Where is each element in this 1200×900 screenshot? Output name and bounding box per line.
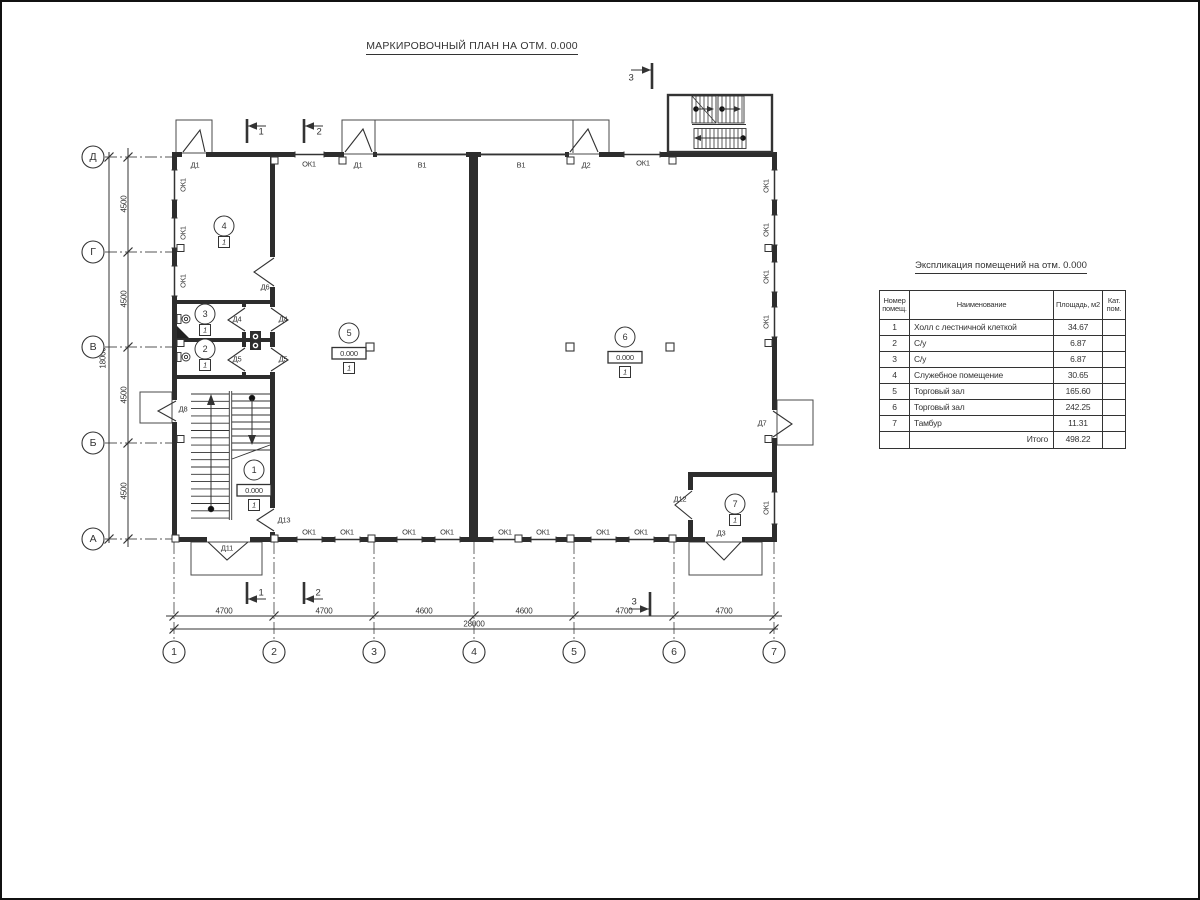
opening-label: Д4 [279,315,288,324]
row-name: Холл с лестничной клеткой [910,320,1054,336]
wall [599,152,624,157]
toilet-bowl [184,317,187,320]
row-area: 165.60 [1054,384,1103,400]
opening-label: ОК1 [536,528,550,537]
floor-type: 1 [252,501,256,510]
wall [654,537,705,542]
axis-label: Б [90,437,97,449]
opening-label: Д11 [221,544,233,553]
row-category [1103,400,1125,416]
row-category [1103,336,1125,352]
floor-type: 1 [222,238,226,247]
toilet-tank [177,315,181,324]
row-area: 6.87 [1054,352,1103,368]
axis-label: А [90,533,97,545]
elevation-value: 0.000 [616,353,634,362]
door-leaf [257,509,274,531]
room-number: 5 [347,328,352,338]
axis-label: 2 [271,646,277,658]
vent-stack [254,335,256,337]
section-mark-arrow [248,595,257,603]
row-category [1103,416,1125,432]
opening-label: Д1 [191,161,200,170]
total-row-number [880,432,910,448]
room-number: 1 [252,465,257,475]
opening-label: Д4 [233,315,242,324]
wall [772,152,777,170]
axis-label: Д [90,151,97,163]
wall-pilaster [669,535,676,542]
porch-outline [176,120,212,153]
wall-pilaster [567,157,574,164]
row-name: Торговый зал [910,384,1054,400]
column [366,343,374,351]
wall [460,537,493,542]
total-label: Итого [910,432,1054,448]
row-number: 3 [880,352,910,368]
section-number: 2 [316,127,321,138]
dimension-label: 28000 [463,620,485,629]
door-leaf [570,129,598,152]
dimension-label: 4600 [416,607,434,616]
wall-pilaster [368,535,375,542]
row-category [1103,320,1125,336]
porch-outline [140,392,172,423]
opening-label: ОК1 [762,223,771,237]
row-area: 34.67 [1054,320,1103,336]
wall [172,296,177,400]
opening-label: Д7 [758,419,767,428]
wall [322,537,335,542]
wall [772,438,777,492]
stair-arrowhead [248,435,256,445]
door-leaf [706,542,741,560]
door-leaf [183,130,205,152]
opening-label: Д13 [278,516,291,525]
wall [772,337,777,410]
section-mark-arrow [305,595,314,603]
axis-label: 5 [571,646,577,658]
floor-type: 1 [203,326,207,335]
room-schedule-table: Номер помещ. Наименование Площадь, м2 Ка… [879,290,1126,449]
axis-label: 6 [671,646,677,658]
section-number: 1 [258,127,263,138]
wall [688,520,693,542]
stair-break-line [232,445,270,459]
duct-shaft [177,326,189,338]
dimension-label: 4700 [216,607,234,616]
wall [174,375,270,379]
row-number: 6 [880,400,910,416]
row-area: 6.87 [1054,336,1103,352]
section-number: 1 [258,588,263,599]
porch-outline [777,400,813,445]
elevation-value: 0.000 [245,486,263,495]
opening-label: ОК1 [179,274,188,288]
wall [174,300,270,304]
porch-outline [342,120,609,154]
opening-label: ОК1 [440,528,454,537]
opening-label: В1 [418,161,427,170]
wall [688,472,693,490]
floor-type: 1 [733,516,737,525]
row-category [1103,368,1125,384]
wall [772,245,777,262]
section-number: 2 [315,588,320,599]
row-name: С/у [910,352,1054,368]
wall-pilaster [177,245,184,252]
opening-label: ОК1 [302,160,316,169]
elevation-value: 0.000 [340,349,358,358]
wall [324,152,344,157]
wall [172,200,177,218]
vent-stack [254,344,256,346]
wall [360,537,397,542]
opening-label: Д8 [179,405,188,414]
row-area: 242.25 [1054,400,1103,416]
room-number: 2 [203,344,208,354]
wall-pilaster [765,340,772,347]
row-category [1103,352,1125,368]
opening-label: Д3 [717,529,726,538]
opening-label: ОК1 [596,528,610,537]
room-number: 3 [203,309,208,319]
wall [772,524,777,542]
wall [206,152,295,157]
section-mark-arrow [248,122,257,130]
row-number: 1 [880,320,910,336]
col-header-number: Номер помещ. [880,291,910,320]
row-area: 30.65 [1054,368,1103,384]
dimension-label: 4600 [516,607,534,616]
wall [172,422,177,542]
opening-label: ОК1 [762,179,771,193]
row-number: 2 [880,336,910,352]
col-header-name: Наименование [910,291,1054,320]
row-name: Тамбур [910,416,1054,432]
opening-label: Д12 [674,495,687,504]
opening-label: Д5 [279,355,288,364]
row-number: 5 [880,384,910,400]
opening-label: ОК1 [179,226,188,240]
opening-label: ОК1 [498,528,512,537]
wall-pilaster [669,157,676,164]
wall [270,157,275,257]
toilet-tank [177,353,181,362]
wall [688,472,772,477]
door-leaf [158,401,176,421]
opening-label: ОК1 [340,528,354,537]
wall-pilaster [177,436,184,443]
column [666,343,674,351]
floor-type: 1 [347,364,351,373]
opening-label: ОК1 [636,159,650,168]
dimension-label: 4700 [616,607,634,616]
row-number: 7 [880,416,910,432]
wall-pilaster [271,535,278,542]
wall-pilaster [177,340,184,347]
row-area: 11.31 [1054,416,1103,432]
wall [469,157,478,537]
door-leaf [345,129,372,152]
row-name: Торговый зал [910,400,1054,416]
opening-label: ОК1 [179,178,188,192]
external-stair-outline [668,95,772,152]
drawing-sheet: МАРКИРОВОЧНЫЙ ПЛАН НА ОТМ. 0.000 123123Д… [0,0,1200,900]
dimension-label: 4700 [716,607,734,616]
section-mark-arrow [642,66,651,74]
axis-label: Г [90,246,96,258]
stair-arrowhead [207,394,215,405]
opening-label: ОК1 [302,528,316,537]
opening-label: ОК1 [762,501,771,515]
opening-label: Д1 [354,161,363,170]
opening-label: Д6 [261,283,270,292]
wall-pilaster [765,245,772,252]
wall-pilaster [515,535,522,542]
opening-label: ОК1 [634,528,648,537]
col-header-area: Площадь, м2 [1054,291,1103,320]
wall [616,537,629,542]
wall [422,537,435,542]
room-schedule-title: Экспликация помещений на отм. 0.000 [876,260,1126,271]
dimension-label: 4700 [316,607,334,616]
wall [270,332,275,347]
axis-label: 1 [171,646,177,658]
wall [742,537,777,542]
toilet-bowl [184,355,187,358]
wall-pilaster [765,436,772,443]
wall-pilaster [567,535,574,542]
section-number: 3 [628,73,633,84]
dimension-label: 4500 [120,386,129,404]
col-header-category: Кат. пом. [1103,291,1125,320]
column [566,343,574,351]
row-number: 4 [880,368,910,384]
wall-pilaster [339,157,346,164]
stair-arrowhead [734,106,741,112]
room-number: 4 [222,221,227,231]
row-name: Служебное помещение [910,368,1054,384]
wall-pilaster [172,535,179,542]
wall-pilaster [271,157,278,164]
floor-plan: 123123Д1ОК1Д1В1В1Д2ОК1ОК1ОК1ОК1ОК1ОК1ОК1… [2,2,1198,898]
dimension-label: 4500 [120,195,129,213]
row-name: С/у [910,336,1054,352]
room-number: 6 [623,332,628,342]
opening-label: Д2 [582,161,591,170]
opening-label: ОК1 [762,270,771,284]
section-mark-arrow [640,605,649,613]
axis-label: 4 [471,646,477,658]
wall [772,200,777,215]
opening-label: ОК1 [402,528,416,537]
door-leaf [773,411,792,437]
opening-label: В1 [517,161,526,170]
axis-label: В [90,341,97,353]
opening-label: Д5 [233,355,242,364]
wall [172,248,177,266]
stair-arrowhead [694,135,701,141]
wall [270,287,275,307]
total-category [1103,432,1125,448]
stair-start-dot [208,506,214,512]
row-category [1103,384,1125,400]
stair-arrowhead [707,106,714,112]
dimension-label: 4500 [120,290,129,308]
section-mark-arrow [305,122,314,130]
dimension-label: 4500 [120,482,129,500]
wall [772,292,777,307]
axis-label: 7 [771,646,777,658]
opening-label: ОК1 [762,315,771,329]
floor-type: 1 [203,361,207,370]
floor-type: 1 [623,368,627,377]
axis-label: 3 [371,646,377,658]
room-number: 7 [733,499,738,509]
total-area: 498.22 [1054,432,1103,448]
wall [172,152,177,170]
